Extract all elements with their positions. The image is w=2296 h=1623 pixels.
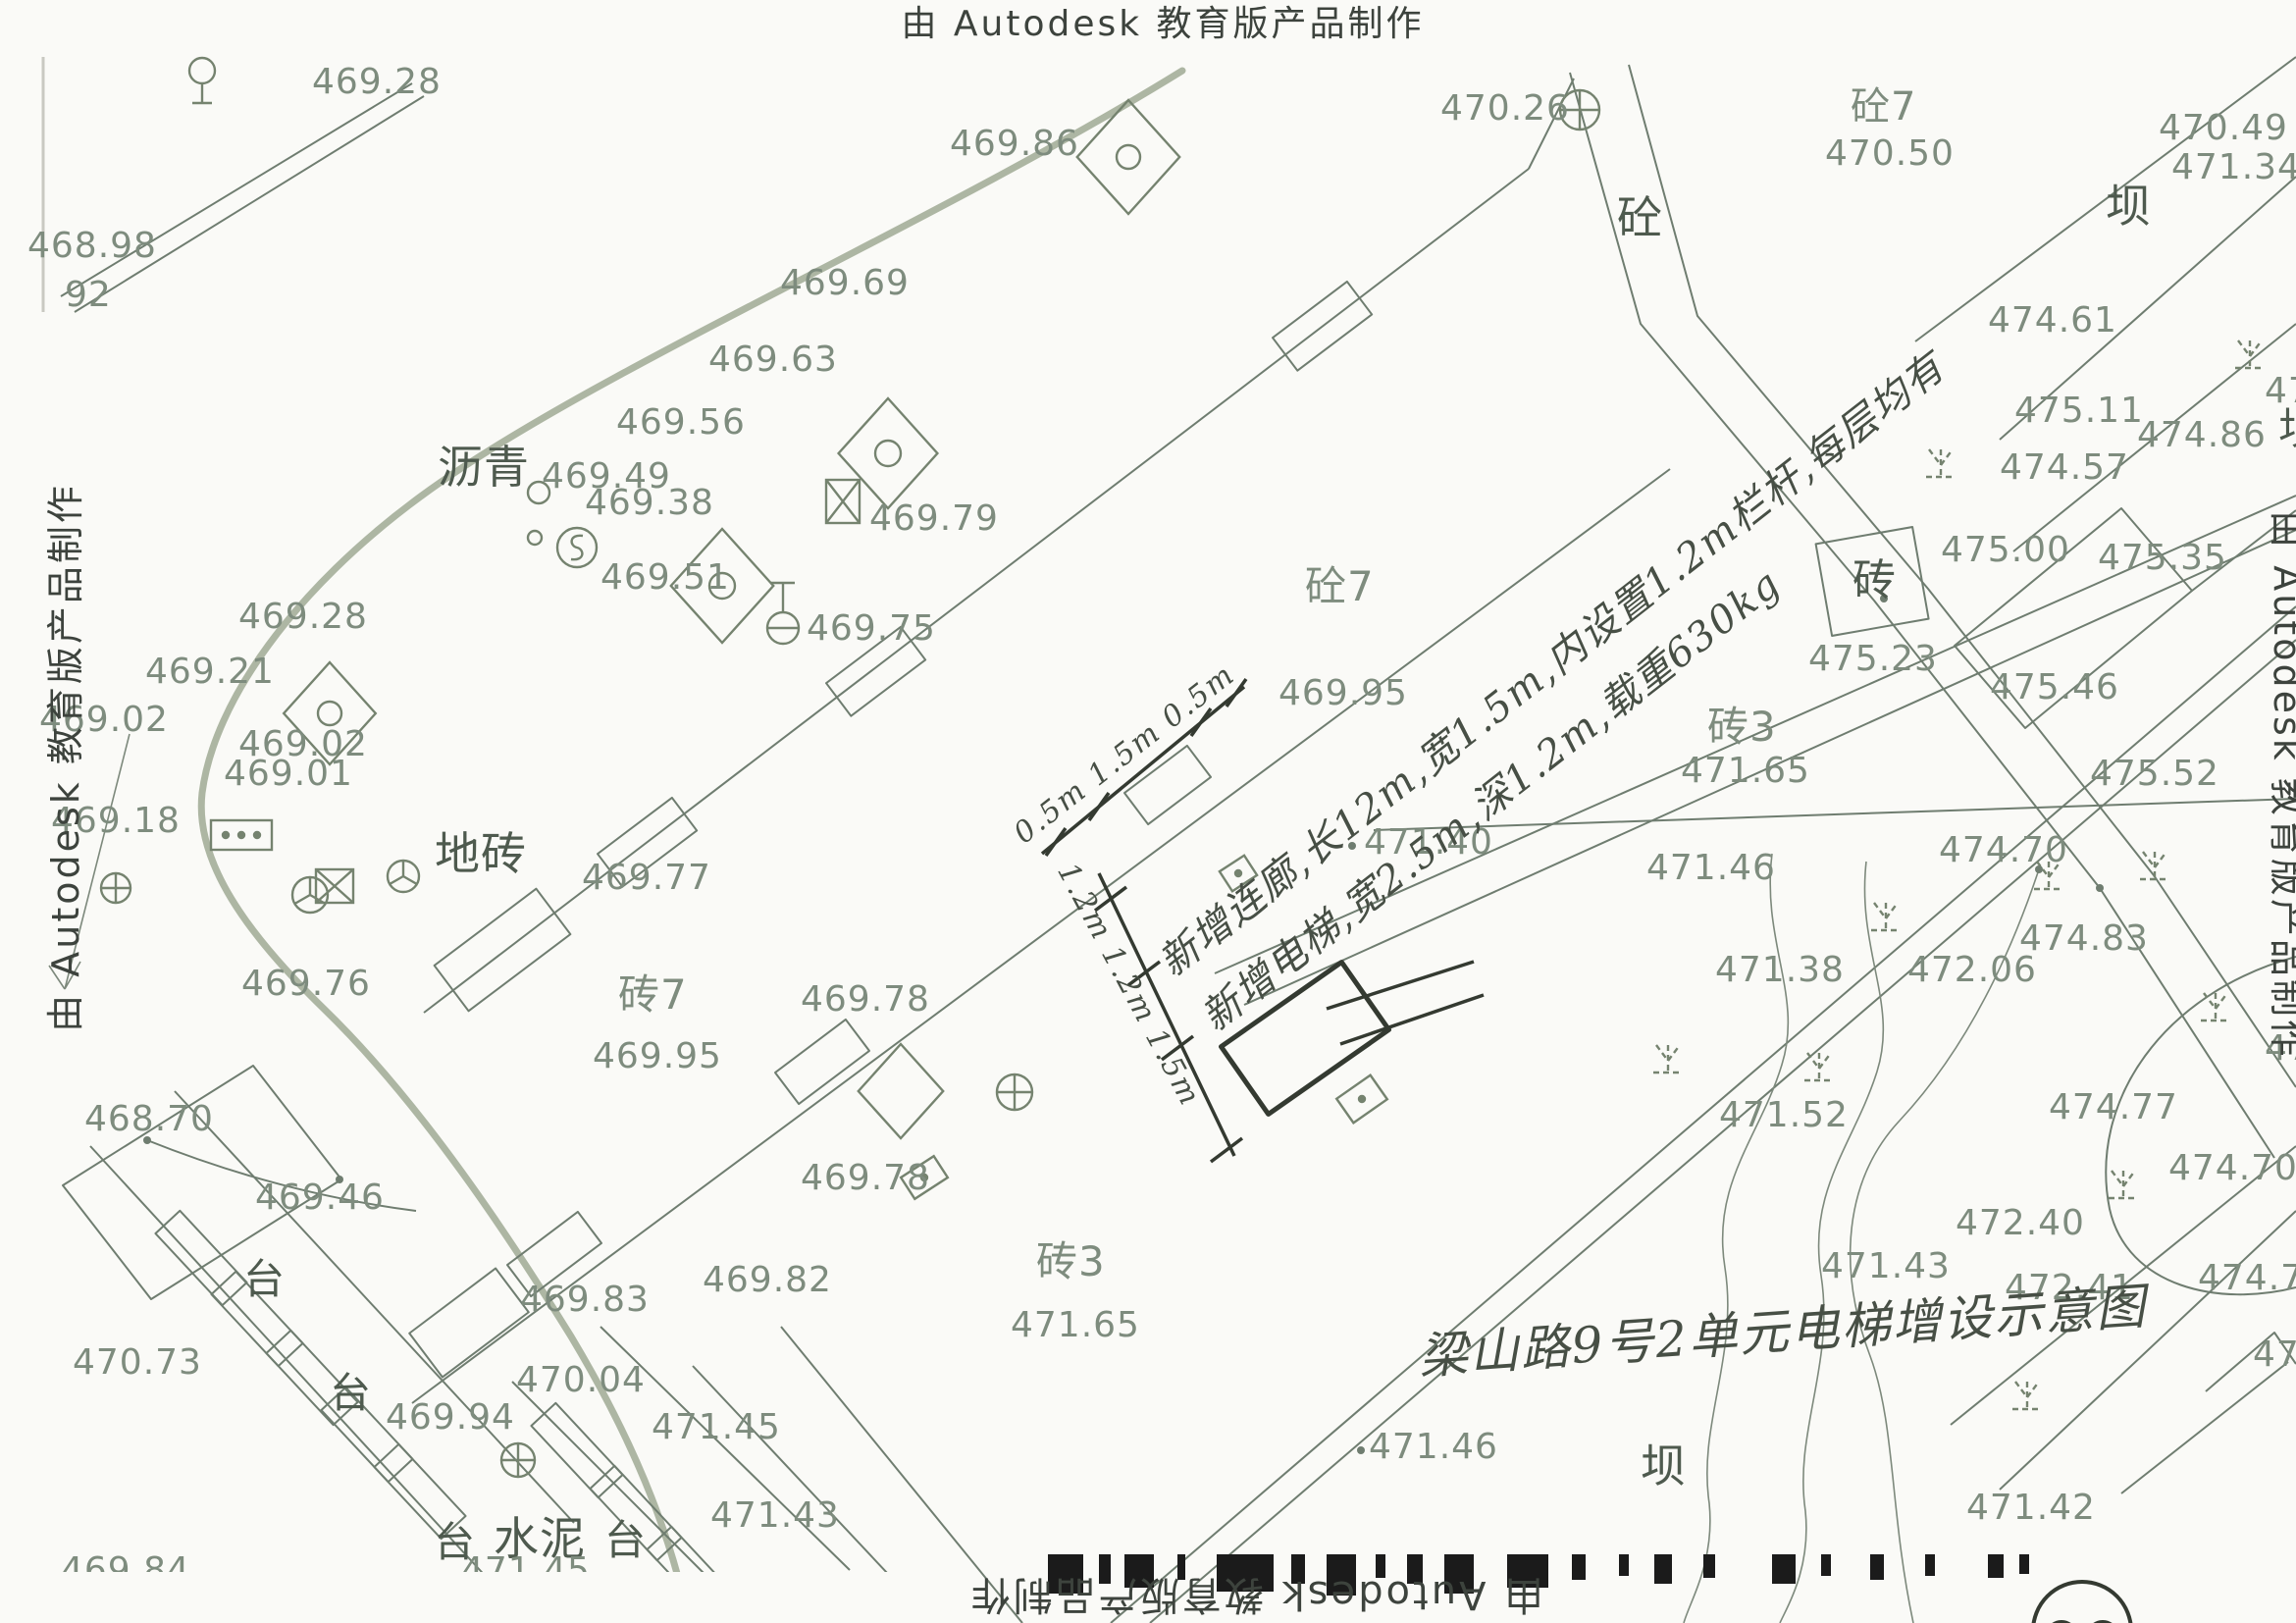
elevation-label: 475.46	[1990, 667, 2119, 707]
cut-glyph-fragment	[1925, 1554, 1935, 1576]
elevation-label: 471.34	[2171, 147, 2296, 187]
handwritten-annotation: 梁山路9号2单元电梯增设示意图	[1417, 1278, 2153, 1386]
elevation-label: 469.76	[241, 964, 371, 1004]
elevation-label: 474.70	[1939, 830, 2068, 870]
elevation-label: 472.40	[1956, 1203, 2085, 1243]
grass-symbol	[2109, 1171, 2138, 1198]
elevation-label: 469.46	[255, 1178, 385, 1218]
sCircle-symbol	[557, 528, 597, 567]
elevation-label: 469.95	[1278, 673, 1408, 713]
minusCircle-symbol	[767, 583, 799, 644]
dot-symbol	[2096, 884, 2104, 892]
elevation-label: 471.45	[652, 1407, 781, 1447]
elevation-label: 471.46	[1369, 1427, 1498, 1467]
tree-symbol	[189, 58, 215, 103]
handwritten-annotation: 新增电梯,宽2.5m,深1.2m,载重630kg	[1193, 560, 1790, 1040]
elevation-label: 474.7	[2198, 1258, 2296, 1298]
surface-type-label: 砖7	[618, 970, 688, 1019]
elevation-label: 469.28	[312, 62, 442, 102]
elevation-label: 469.79	[869, 498, 999, 539]
elevation-label: 469.94	[386, 1397, 515, 1438]
elevation-label: 469.86	[950, 124, 1079, 164]
elevation-label: 469.83	[520, 1280, 650, 1320]
spoke-symbol	[292, 877, 328, 913]
elevation-label: 471.38	[1715, 950, 1845, 990]
crossCircle-symbol	[501, 1443, 535, 1477]
elevation-label: 474.61	[1988, 300, 2117, 340]
spoke-symbol	[388, 861, 419, 892]
cut-glyph-fragment	[1654, 1554, 1672, 1584]
surface-type-label: 地砖	[435, 827, 527, 880]
scanned-site-plan-sheet: 469.28468.9892469.86469.69469.63469.56沥青…	[0, 0, 2296, 1623]
cut-glyph-fragment	[1821, 1554, 1831, 1576]
grass-symbol	[2140, 852, 2169, 879]
elevation-label: 471.43	[710, 1495, 840, 1536]
diamond-symbol	[859, 1044, 943, 1138]
elevation-label: 471.65	[1011, 1305, 1140, 1345]
grass-symbol	[1653, 1045, 1683, 1073]
elevation-label: 469.38	[585, 483, 714, 523]
elevation-label: 472	[2253, 1335, 2296, 1375]
elevation-label: 470.04	[516, 1360, 646, 1400]
surface-type-label: 砖3	[1036, 1237, 1106, 1285]
cut-glyph-fragment	[2019, 1554, 2029, 1574]
elevation-label: 474.83	[2019, 918, 2149, 959]
rectDots-symbol	[211, 820, 272, 850]
map-labels: 469.28468.9892469.86469.69469.63469.56沥青…	[27, 62, 2296, 1591]
elevation-label: 469.78	[801, 1158, 930, 1198]
elevation-label: 469.56	[616, 402, 746, 443]
surface-type-label: 坝	[2106, 180, 2152, 233]
surface-type-label: 坝	[1641, 1440, 1687, 1492]
bottom-watermark: 由 Autodesk 教育版产品制作	[968, 1572, 1543, 1617]
grass-symbol	[2012, 1382, 2042, 1409]
elevation-label: 470.49	[2159, 108, 2288, 148]
rectX-symbol	[826, 480, 860, 523]
elevation-label: 471.43	[1821, 1246, 1951, 1286]
elevation-label: 469.82	[703, 1260, 832, 1300]
crossCircle-symbol	[997, 1074, 1032, 1110]
elevation-label: 468.98	[27, 226, 157, 266]
dot-symbol	[1357, 1446, 1365, 1454]
left-watermark: 由 Autodesk 教育版产品制作	[44, 483, 87, 1032]
circle-symbol	[528, 531, 542, 545]
cut-glyph-fragment	[1703, 1554, 1715, 1578]
elevation-label: 469.01	[224, 754, 353, 794]
elevation-label: 472.06	[1907, 950, 2037, 990]
surface-type-label: 砖	[1852, 555, 1897, 605]
surface-type-label: 砼7	[1851, 84, 1916, 130]
elevation-label: 471.52	[1719, 1095, 1849, 1135]
surface-type-label: 沥青	[438, 441, 530, 494]
surface-type-label: 砼7	[1305, 562, 1375, 610]
elevation-label: 475	[2265, 371, 2296, 411]
elevation-label: 471.65	[1681, 751, 1810, 791]
surface-type-label: 砖3	[1707, 703, 1777, 751]
diamond-symbol	[1077, 100, 1179, 214]
surface-type-label: 砼	[1617, 191, 1663, 244]
elevation-label: 475.11	[2014, 391, 2144, 431]
elevation-label: 474.70	[2168, 1148, 2296, 1188]
crossCircle-symbol	[101, 873, 130, 903]
sheet-edge-mask	[0, 1572, 962, 1623]
elevation-label: 469.78	[801, 979, 930, 1020]
right-watermark: 由 Autodesk 教育版产品制作	[2266, 510, 2296, 1060]
elevation-label: 470.50	[1825, 133, 1955, 174]
elevation-label: 469.69	[780, 263, 910, 303]
elevation-label: 475.23	[1808, 639, 1938, 679]
elevation-label: 469.51	[600, 557, 730, 598]
elevation-label: 469.77	[582, 858, 711, 898]
cut-glyph-fragment	[1988, 1554, 2004, 1578]
elevation-label: 474.57	[2000, 447, 2129, 488]
elevation-label: 474.86	[2137, 415, 2267, 455]
elevation-label: 471.42	[1966, 1488, 2096, 1528]
cutCircle-symbol	[2033, 1582, 2131, 1623]
site-plan-drawing: 469.28468.9892469.86469.69469.63469.56沥青…	[0, 0, 2296, 1623]
elevation-label: 475.52	[2090, 754, 2219, 794]
tinyRect-symbol	[1336, 1075, 1387, 1124]
elevation-label: 469.75	[807, 608, 936, 649]
cut-glyph-fragment	[1870, 1554, 1884, 1580]
elevation-label: 469.63	[708, 340, 838, 380]
elevation-label: 469.95	[593, 1036, 722, 1076]
handwritten-annotation: 0.5m 1.5m 0.5m	[1008, 657, 1242, 851]
elevation-label: 474.77	[2049, 1087, 2178, 1127]
cut-glyph-fragment	[1572, 1554, 1586, 1580]
elevation-label: 475.00	[1941, 530, 2070, 570]
elevation-label: 468.70	[84, 1099, 214, 1139]
elevation-label: 475.35	[2098, 538, 2227, 578]
handwritten-annotation: 1.2m 1.2m 1.5m	[1050, 858, 1207, 1113]
cut-glyph-fragment	[1619, 1554, 1629, 1576]
top-watermark: 由 Autodesk 教育版产品制作	[901, 4, 1424, 44]
elevation-label: 469.21	[145, 652, 275, 692]
surface-type-label: 台	[604, 1516, 647, 1564]
diamond-symbol	[839, 398, 938, 508]
elevation-label: 471.46	[1646, 848, 1776, 888]
grass-symbol	[2235, 340, 2265, 368]
elevation-label: 469.28	[238, 597, 368, 637]
elevation-label: 470.73	[73, 1342, 202, 1383]
surface-type-label: 台	[330, 1369, 372, 1417]
cut-glyph-fragment	[1772, 1554, 1796, 1584]
elevation-label: 92	[65, 275, 112, 315]
grass-symbol	[1871, 903, 1901, 930]
elevation-label: 470.26	[1440, 88, 1570, 129]
surface-type-label: 台	[243, 1255, 286, 1303]
surface-type-label: 坝	[2278, 404, 2296, 454]
grass-symbol	[1926, 449, 1956, 477]
rectX-symbol	[316, 869, 353, 903]
